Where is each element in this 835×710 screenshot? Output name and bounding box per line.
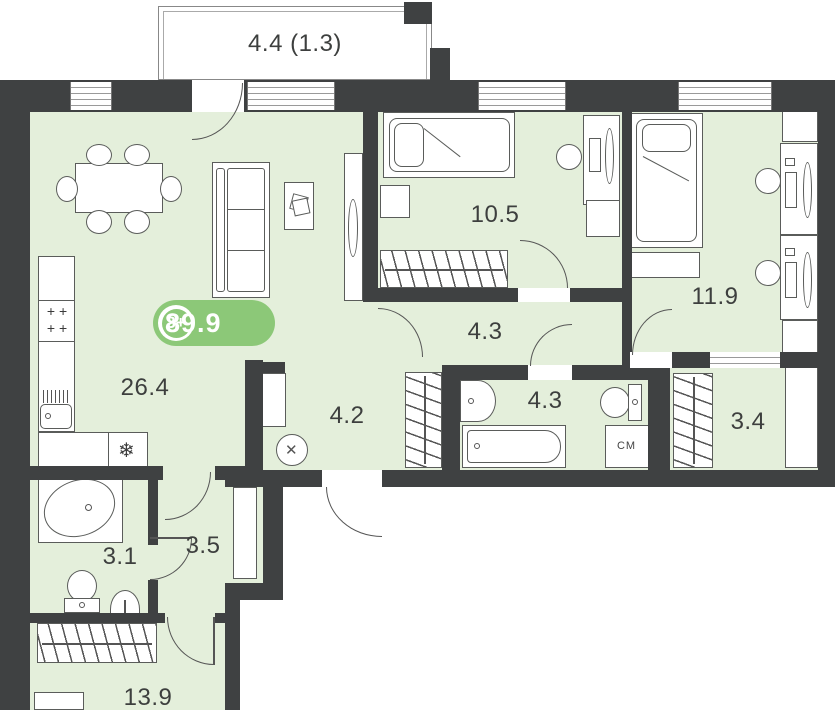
room-label-wc: 3.1	[85, 543, 155, 571]
window-living	[70, 82, 112, 110]
sofa	[212, 162, 270, 298]
desk-chair	[755, 168, 781, 194]
wall-living-corridor2	[245, 360, 263, 470]
tub-drain	[85, 504, 92, 511]
room-label-bottom-room: 13.9	[113, 684, 183, 710]
window-bedroom-right	[678, 82, 772, 110]
door-opening-bedroom-top	[518, 288, 570, 302]
room-label-bedroom-top: 10.5	[460, 201, 530, 229]
dining-chair	[86, 144, 112, 166]
dining-chair	[160, 176, 182, 202]
floor-plan: + + + + ❄ ✕	[0, 0, 835, 710]
room-label-hall2: 3.5	[168, 532, 238, 560]
desk-right-2	[780, 235, 818, 320]
hall-cabinet	[262, 373, 286, 427]
wardrobe-bottom	[37, 623, 157, 663]
kitchen-counter-2	[38, 432, 110, 468]
closet-cabinet	[785, 357, 818, 468]
small-sink-tap	[124, 600, 126, 613]
wall-wc-hall-top	[215, 466, 263, 480]
fridge-icon: ❄	[118, 438, 135, 463]
room-label-closet: 3.4	[713, 408, 783, 436]
sink-drain	[45, 413, 51, 419]
wall-hall-right	[263, 470, 283, 600]
balcony-notch	[404, 2, 432, 24]
window-bedroom-top	[478, 82, 566, 110]
drawer-unit	[586, 200, 620, 237]
dresser-right-room	[630, 252, 700, 278]
washing-machine-label: СМ	[617, 440, 636, 452]
wall-corridor-bath	[442, 365, 460, 470]
wall-bottom-row	[225, 470, 835, 487]
wall-left	[0, 80, 30, 710]
desk-chair	[556, 144, 582, 170]
wardrobe-top-room	[380, 250, 508, 288]
toilet-button	[632, 399, 638, 405]
toilet-button-2	[79, 602, 85, 608]
wall-right	[818, 80, 835, 487]
bed-single-top	[383, 112, 515, 178]
door-leaf-bottom-room	[213, 617, 215, 665]
wall-bedrooms-divider	[622, 112, 632, 368]
door-opening-bathroom	[528, 365, 572, 380]
wardrobe-closet	[673, 373, 713, 468]
balcony-label: 4.4 (1.3)	[230, 30, 360, 58]
bed-single-right	[630, 113, 703, 248]
wall-jog	[225, 583, 283, 600]
toilet-bowl	[600, 387, 630, 418]
area-badge: 3+ 89.9	[153, 300, 275, 346]
bed-bottom	[34, 692, 84, 710]
total-area: 89.9	[165, 308, 222, 339]
stove-burners: + + + +	[42, 303, 72, 337]
desk-top-room	[583, 115, 620, 205]
wardrobe-corridor	[405, 372, 442, 468]
desk-chair	[755, 260, 781, 286]
room-label-living: 26.4	[110, 374, 180, 402]
dining-chair	[86, 210, 112, 234]
column-strip	[782, 110, 818, 142]
closet-passage	[710, 352, 780, 368]
room-label-corridor-top: 4.3	[450, 318, 520, 346]
dining-chair	[124, 210, 150, 234]
dining-table	[75, 163, 163, 213]
wall-living-bedroom	[363, 112, 378, 302]
wall-bottom-right	[225, 600, 240, 710]
room-label-bedroom-right: 11.9	[680, 283, 750, 311]
wall-bath-closet	[648, 368, 670, 470]
wall-wc-right-b	[148, 580, 158, 615]
room-label-corridor-entry: 4.2	[312, 402, 382, 430]
sink-faucet	[468, 398, 474, 404]
outside-area-2	[240, 600, 283, 710]
nightstand	[380, 185, 410, 218]
desk-right-1	[780, 143, 818, 235]
tv-unit	[344, 153, 363, 301]
corner-bathtub	[38, 475, 123, 543]
dining-chair	[124, 144, 150, 166]
balcony-corner	[430, 48, 450, 82]
vent-cross-icon: ✕	[285, 441, 298, 459]
wall-bedroom-south	[363, 288, 622, 302]
bathroom-sink	[460, 380, 496, 422]
wall-wc-right-a	[148, 470, 158, 545]
tub-faucet	[474, 443, 480, 449]
room-label-bathroom: 4.3	[510, 387, 580, 415]
dining-chair	[56, 176, 78, 202]
dish-rack	[40, 390, 71, 403]
wall-living-wc	[30, 466, 165, 480]
entrance-opening	[322, 470, 382, 487]
side-table	[284, 182, 314, 230]
window-living-2	[247, 82, 335, 110]
